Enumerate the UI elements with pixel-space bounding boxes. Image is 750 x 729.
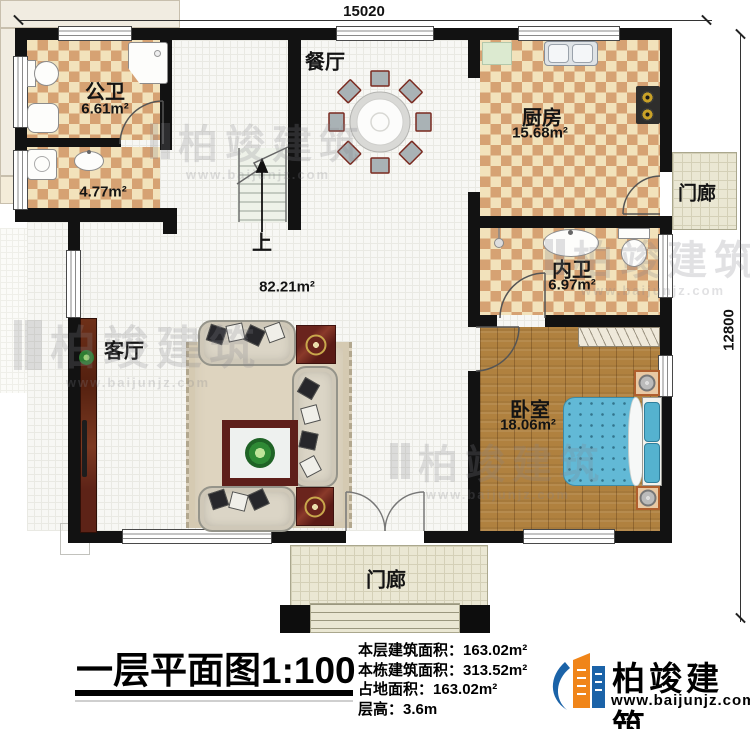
- staircase: [237, 148, 288, 222]
- stove-burner: [641, 108, 654, 121]
- bath-tub: [27, 103, 59, 133]
- dresser: [634, 370, 660, 396]
- stat-line: 本栋建筑面积：313.52m²: [358, 661, 527, 681]
- table-ornament: [306, 334, 327, 355]
- wall-segment: [660, 216, 672, 236]
- wall-segment: [545, 315, 672, 327]
- wall-segment: [468, 371, 480, 533]
- wardrobe: [578, 327, 660, 347]
- toilet-bowl: [34, 61, 59, 86]
- window: [13, 56, 28, 128]
- window: [658, 234, 673, 298]
- kitchen-floor: [480, 40, 660, 216]
- bed-pillow: [644, 402, 660, 442]
- title-underline: [75, 690, 353, 696]
- sheet-title: 一层平面图1:100: [76, 640, 356, 694]
- side-table-bottom: [296, 487, 334, 526]
- dimension-line-right: [740, 34, 741, 622]
- window: [658, 355, 673, 397]
- wall-segment: [468, 192, 480, 327]
- porch-pillar-right: [460, 605, 490, 633]
- window: [13, 150, 28, 210]
- wall-segment: [660, 28, 672, 172]
- wall-segment: [163, 208, 177, 234]
- stat-line: 层高：3.6m: [358, 700, 527, 720]
- building-stats: 本层建筑面积：163.02m² 本栋建筑面积：313.52m² 占地面积：163…: [358, 641, 527, 719]
- wall-segment: [613, 531, 672, 543]
- laundry-sink-faucet: [87, 150, 91, 154]
- dresser-mirror: [639, 375, 656, 392]
- wall-segment: [288, 40, 301, 230]
- area-kitchen: 15.68m²: [512, 125, 568, 142]
- window: [523, 529, 615, 544]
- stat-line: 占地面积：163.02m²: [358, 680, 527, 700]
- company-website: www.baijunjz.com: [611, 692, 750, 709]
- ensuite-sink-faucet: [568, 230, 573, 235]
- coffee-table-plant: [245, 438, 275, 468]
- wall-segment: [468, 40, 480, 78]
- washer-drum: [34, 156, 50, 172]
- wall-segment: [68, 317, 80, 543]
- table-ornament: [305, 496, 326, 517]
- wall-segment: [660, 296, 672, 357]
- nightstand: [636, 486, 660, 510]
- area-ensuite: 6.97m²: [548, 277, 596, 294]
- label-living: 客厅: [104, 335, 144, 364]
- tv-screen: [82, 420, 87, 477]
- wall-segment: [468, 315, 497, 327]
- ensuite-toilet-tank: [618, 228, 650, 239]
- shower-drain: [154, 50, 161, 57]
- dimension-right: 12800: [721, 309, 738, 351]
- porch-pillar-left: [280, 605, 310, 633]
- area-public-bath: 6.61m²: [81, 101, 129, 118]
- sink-bowl: [572, 44, 593, 63]
- wall-segment: [424, 531, 525, 543]
- label-porch-right: 门廊: [678, 179, 716, 206]
- bed-pillow: [644, 443, 660, 483]
- company-name: 柏竣建筑: [612, 652, 750, 729]
- window: [336, 26, 434, 41]
- porch-steps: [310, 603, 460, 633]
- title-underline-thin: [75, 700, 353, 702]
- dimension-line-top: [18, 20, 712, 21]
- wall-segment: [15, 138, 121, 147]
- nightstand-lamp: [640, 490, 657, 507]
- floor-plan-sheet: 公卫 6.61m² 4.77m² 餐厅 厨房 15.68m² 门廊 内卫 6.9…: [0, 0, 750, 729]
- shower-head: [494, 238, 504, 248]
- window: [58, 26, 132, 41]
- wall-segment: [270, 531, 346, 543]
- area-living: 82.21m²: [259, 279, 315, 296]
- label-dining: 餐厅: [305, 46, 345, 75]
- cutting-board: [482, 42, 512, 65]
- bed-mattress: [563, 397, 637, 486]
- wall-segment: [130, 28, 338, 40]
- label-porch-bottom: 门廊: [366, 564, 406, 593]
- window: [518, 26, 620, 41]
- wall-segment: [432, 28, 520, 40]
- stove-burner: [641, 91, 654, 104]
- label-stairs-up: 上: [252, 227, 272, 256]
- side-table-top: [296, 325, 336, 364]
- window: [66, 250, 81, 318]
- area-laundry: 4.77m²: [79, 184, 127, 201]
- wall-segment: [468, 216, 672, 228]
- area-bedroom: 18.06m²: [500, 417, 556, 434]
- wall-segment: [68, 222, 80, 252]
- stat-line: 本层建筑面积：163.02m²: [358, 641, 527, 661]
- sofa-cushion: [298, 430, 318, 450]
- kitchen-counter-top: [0, 0, 180, 28]
- laundry-sink: [74, 151, 104, 171]
- cabinet-plant: [79, 350, 94, 365]
- company-logo-icon: [545, 650, 609, 714]
- wall-segment: [15, 208, 177, 222]
- dimension-top: 15020: [343, 3, 385, 20]
- sink-bowl: [548, 44, 569, 63]
- ensuite-toilet-bowl: [621, 239, 647, 267]
